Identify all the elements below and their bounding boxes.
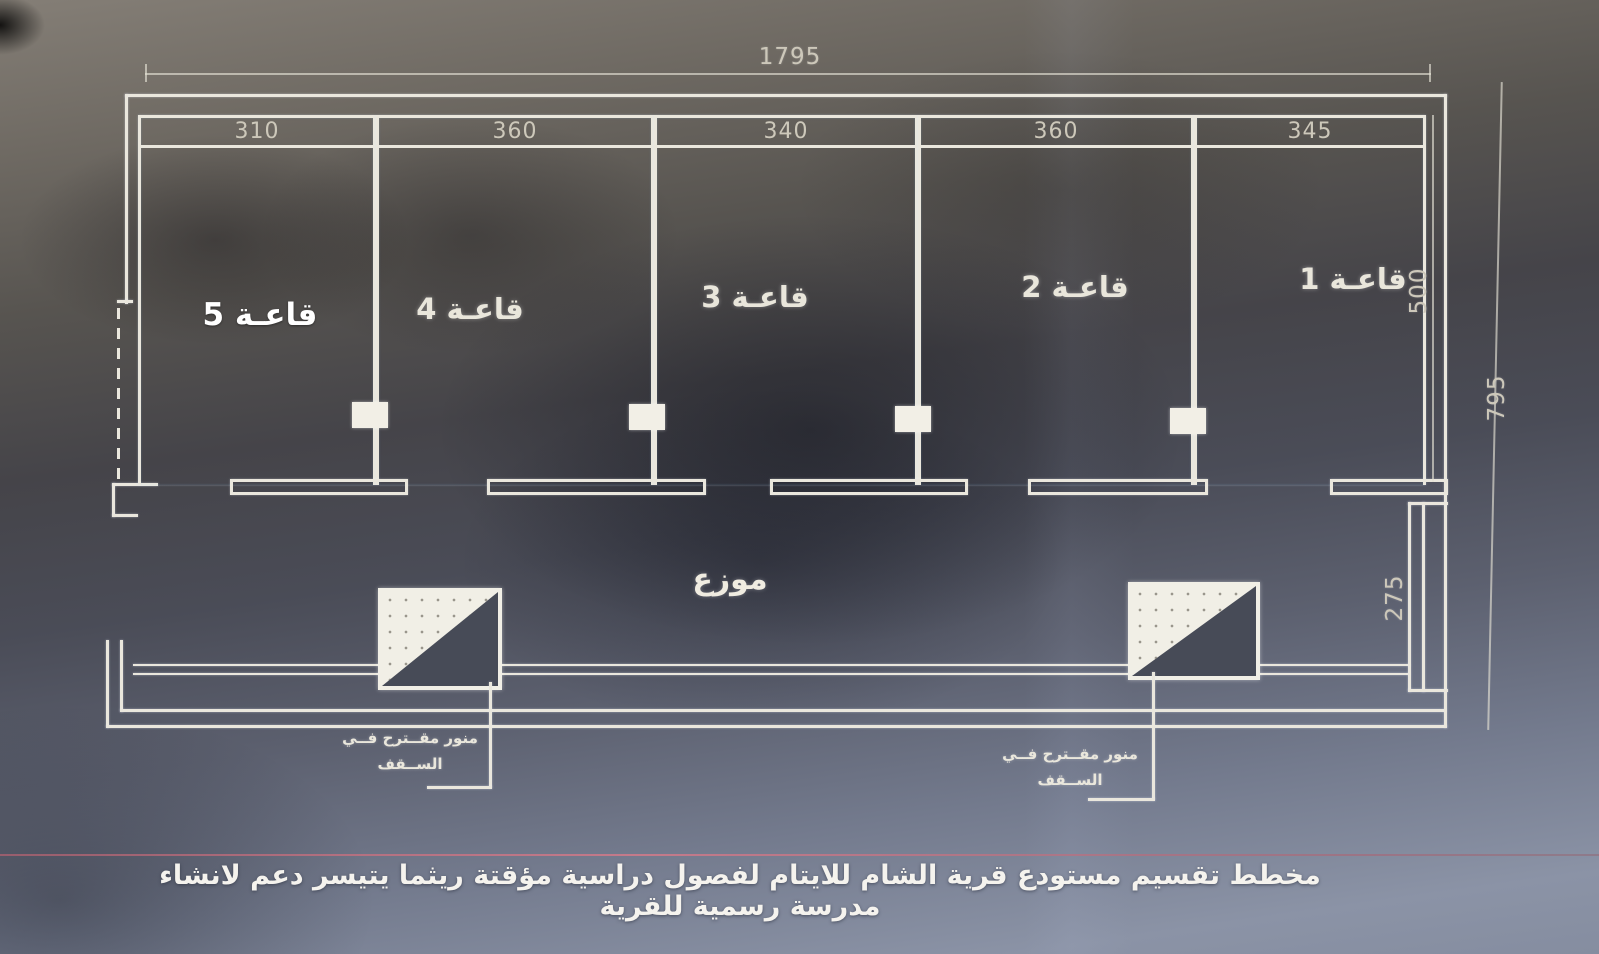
room-5-label: قاعـة 5 [185,297,335,333]
corridor-depth-cap-bottom [1408,689,1448,692]
south-wall-segment-5 [1330,479,1448,495]
overall-depth-value: 795 [1484,363,1510,433]
room-4-width-value: 360 [379,118,651,148]
room-1: 345 [1194,115,1426,485]
partition-column-3-2 [895,406,931,432]
room-4-label: قاعـة 4 [395,292,545,326]
hall-depth-dimension-line [1432,115,1434,482]
entrance-jamb-side [112,483,115,517]
south-wall-segment-1 [230,479,408,495]
outer-wall-top [125,94,1447,97]
leader-line-right-vertical [1152,672,1155,800]
outer-wall-left-upper [125,94,128,304]
outer-wall-bottom-outer [106,725,1447,728]
partition-column-4-3 [629,404,665,430]
red-reference-line [0,854,1599,856]
overall-width-dimension-line [145,73,1431,75]
caption-text: مخطط تقسيم مستودع قرية الشام للايتام لفص… [150,860,1330,922]
corridor-depth-value: 275 [1382,563,1408,633]
outer-wall-right [1444,94,1447,728]
hall-depth-value: 500 [1406,256,1432,326]
dimension-tick-left [145,64,147,82]
leader-line-left-horizontal [427,786,492,789]
room-1-width-value: 345 [1197,118,1423,148]
room-2-width-value: 360 [921,118,1191,148]
corridor-depth-wall-outer [1422,502,1425,692]
overall-width-value: 1795 [700,44,880,70]
south-wall-segment-3 [770,479,968,495]
floor-plan-photo: 1795 310 360 340 360 345 قاعـة 5 قاعـة 4… [0,0,1599,954]
skylight-note-line2: الســقف [990,768,1150,794]
skylight-note-line1: منور مقــترح فــي [990,742,1150,768]
entrance-jamb-bottom [112,514,138,517]
skylight-symbol-right [1128,582,1260,680]
room-2-label: قاعـة 2 [1000,270,1150,304]
outer-wall-left-lower-outer [106,640,109,728]
skylight-note-right: منور مقــترح فــي الســقف [990,742,1150,793]
room-3-label: قاعـة 3 [680,280,830,314]
leader-line-right-horizontal [1088,798,1155,801]
corridor-depth-cap-top [1408,502,1448,505]
room-1-label: قاعـة 1 [1283,262,1423,296]
partition-column-2-1 [1170,408,1206,434]
outer-wall-bottom-inner [120,709,1446,712]
room-3-width-value: 340 [657,118,915,148]
skylight-hatch-triangle [382,592,498,686]
dimension-tick-right [1429,64,1431,82]
room-5-width-value: 310 [141,118,373,148]
corridor-depth-wall-inner [1408,502,1411,692]
skylight-symbol-left [378,588,502,690]
south-wall-segment-2 [487,479,706,495]
corridor-label: موزع [660,562,800,597]
skylight-note-line1: منور مقــترح فــي [330,726,490,752]
outer-wall-left-dashed-opening [117,308,120,483]
south-wall-segment-4 [1028,479,1208,495]
skylight-hatch-triangle [1132,586,1256,676]
partition-column-5-4 [352,402,388,428]
outer-wall-left-tick [117,300,133,303]
outer-wall-left-lower-inner [120,640,123,712]
skylight-note-line2: الســقف [330,752,490,778]
skylight-note-left: منور مقــترح فــي الســقف [330,726,490,777]
